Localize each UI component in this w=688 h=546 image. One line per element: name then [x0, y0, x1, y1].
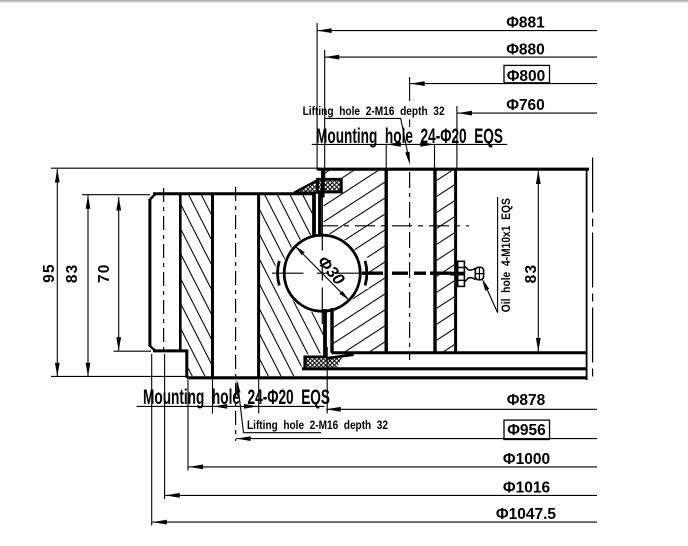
- svg-text:Mounting hole 24-Φ20 EQS: Mounting hole 24-Φ20 EQS: [143, 386, 330, 409]
- svg-text:Φ881: Φ881: [506, 14, 545, 31]
- svg-text:Mounting hole 24-Φ20 EQS: Mounting hole 24-Φ20 EQS: [316, 125, 503, 148]
- svg-text:Φ1016: Φ1016: [503, 479, 551, 496]
- svg-text:83: 83: [523, 264, 540, 284]
- svg-text:Φ956: Φ956: [507, 422, 546, 439]
- svg-text:70: 70: [96, 263, 113, 283]
- svg-text:Φ1047.5: Φ1047.5: [496, 506, 557, 523]
- svg-text:Φ800: Φ800: [507, 68, 546, 85]
- svg-text:Oil hole 4-M10x1 EQS: Oil hole 4-M10x1 EQS: [499, 198, 513, 312]
- svg-text:Lifting hole 2-M16 depth 3: Lifting hole 2-M16 depth 32: [247, 418, 388, 432]
- svg-text:Φ1000: Φ1000: [503, 451, 550, 468]
- svg-text:Lifting hole 2-M16 depth 3: Lifting hole 2-M16 depth 32: [303, 104, 445, 118]
- svg-text:Φ760: Φ760: [506, 97, 545, 114]
- svg-text:95: 95: [41, 263, 58, 283]
- svg-text:Φ880: Φ880: [506, 41, 545, 58]
- svg-text:83: 83: [64, 263, 81, 283]
- svg-text:Φ878: Φ878: [507, 392, 546, 409]
